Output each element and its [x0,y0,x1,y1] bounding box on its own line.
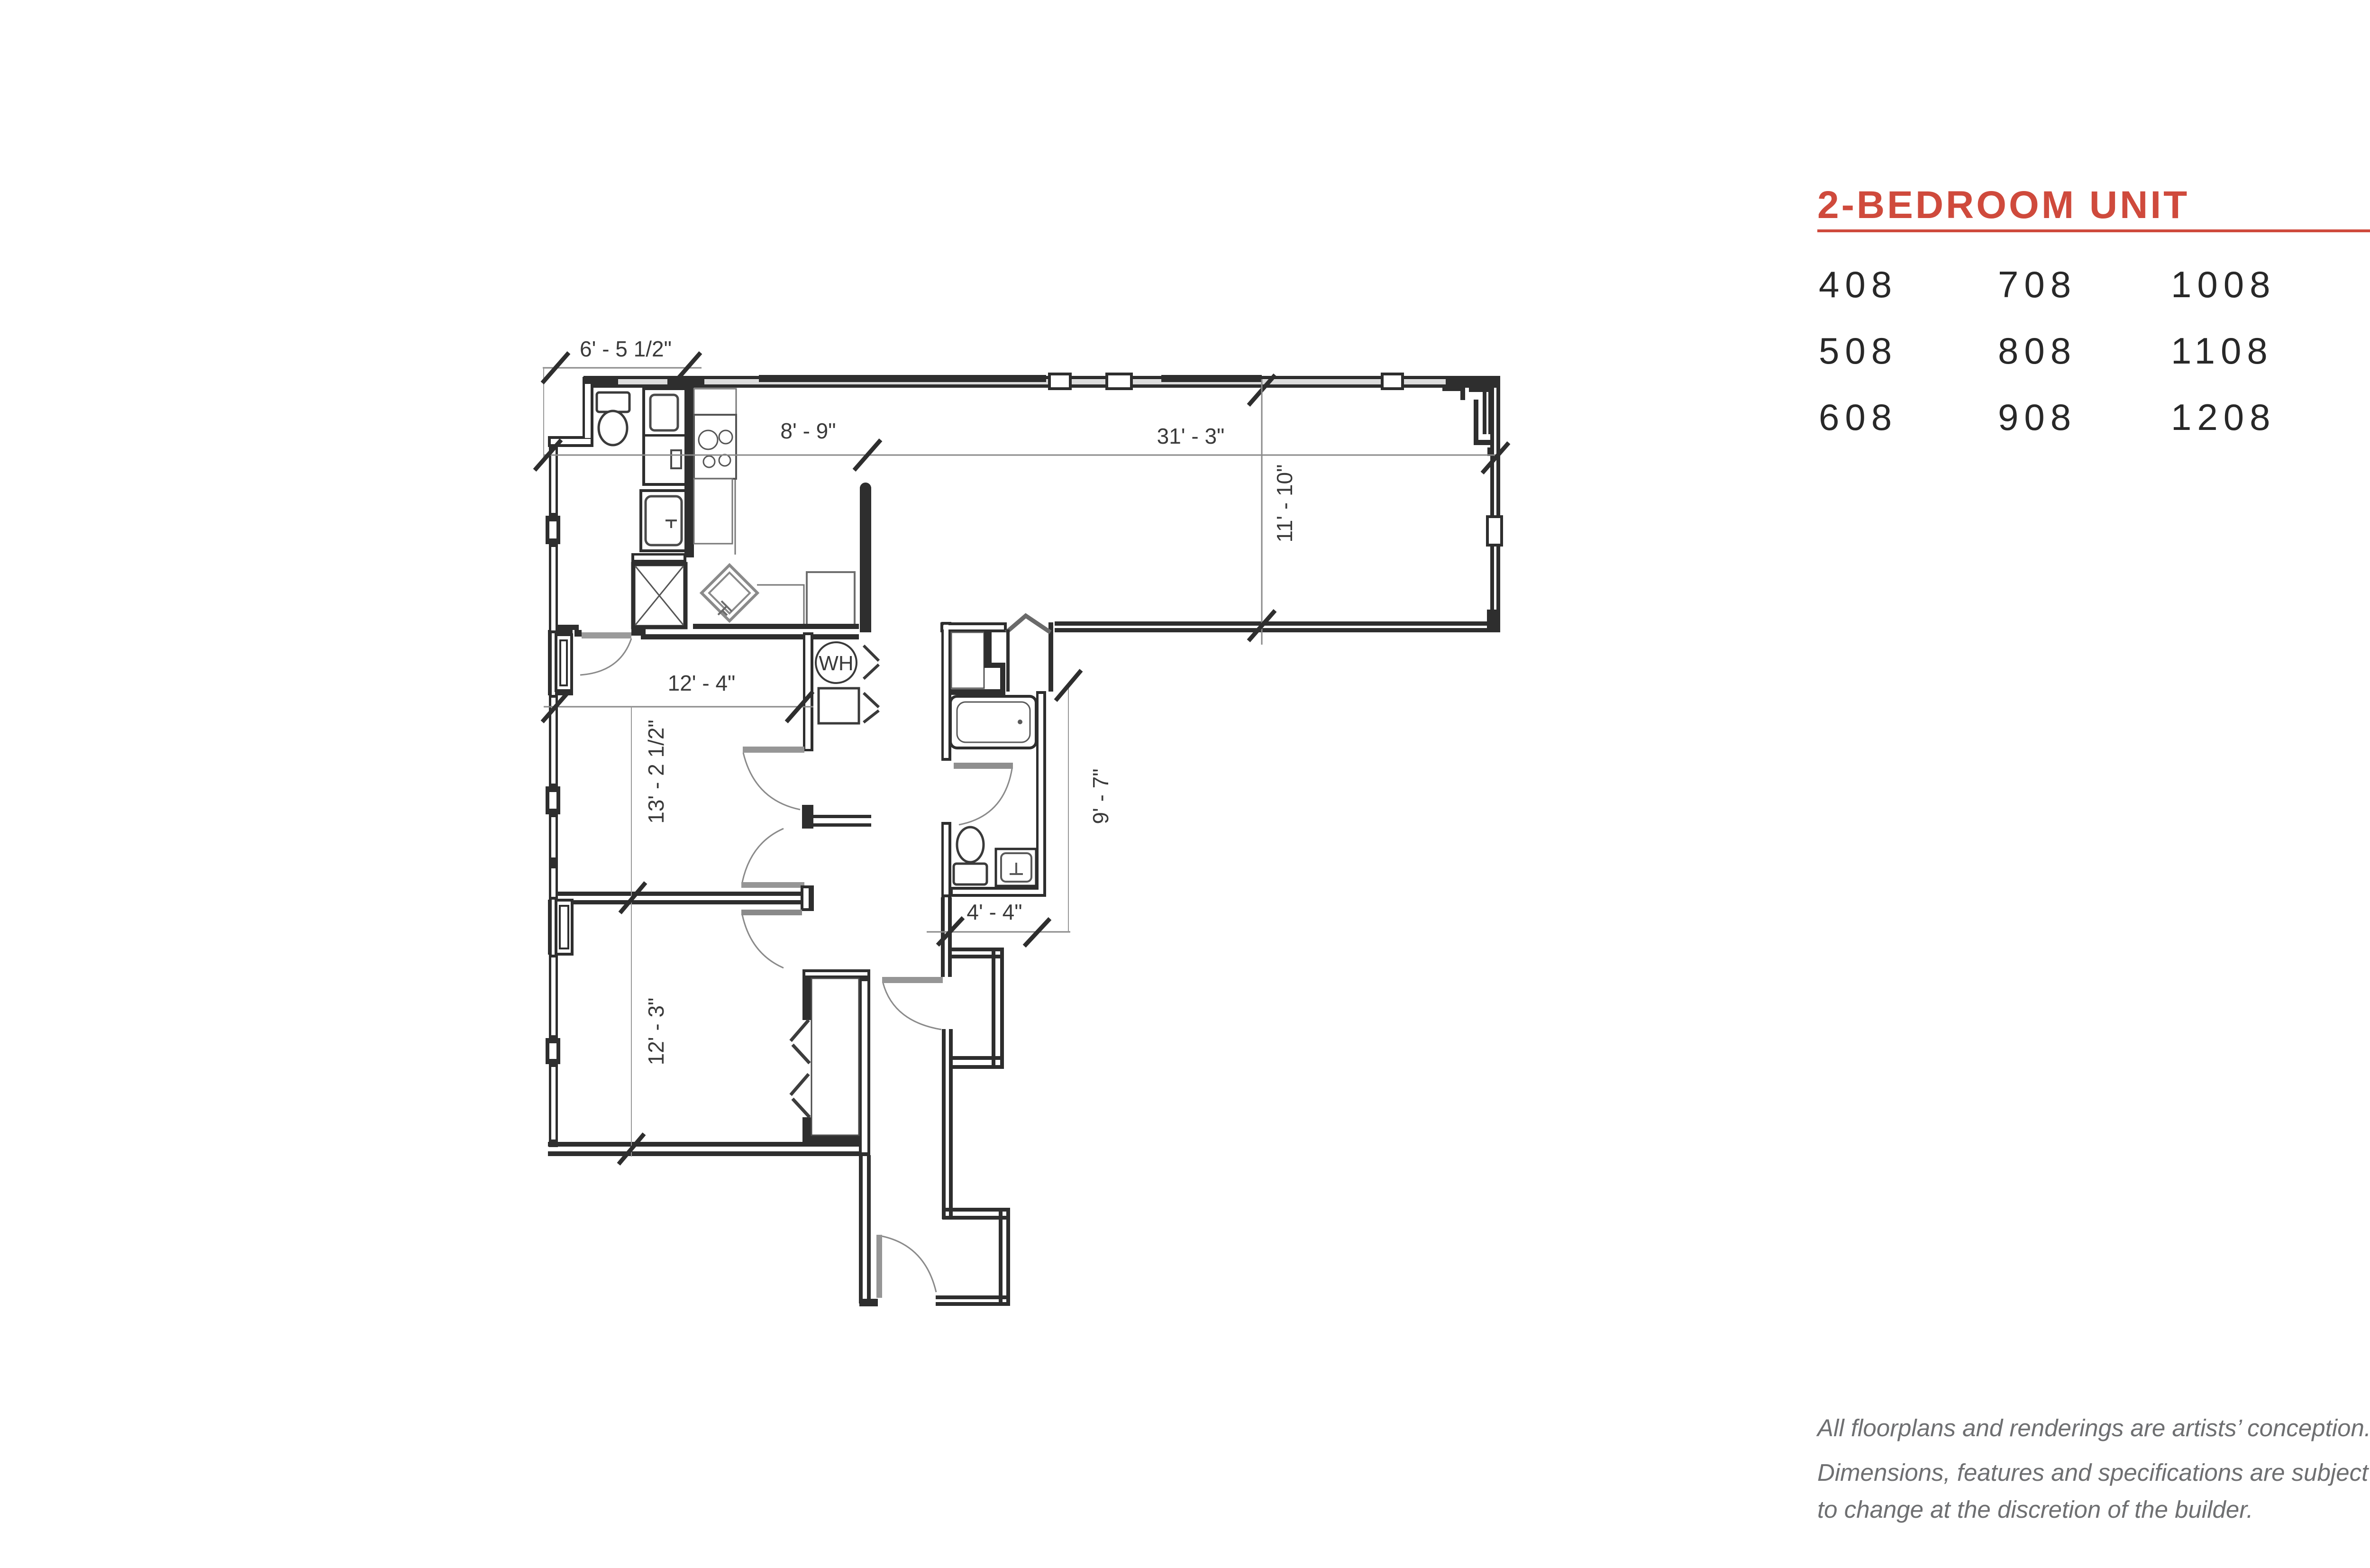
svg-text:1208: 1208 [2171,396,2276,438]
svg-text:6' - 5 1/2": 6' - 5 1/2" [580,337,672,361]
svg-text:31' - 3": 31' - 3" [1157,424,1225,448]
svg-text:508: 508 [1819,330,1897,372]
svg-text:12' - 4": 12' - 4" [668,671,736,695]
svg-text:908: 908 [1998,396,2077,438]
svg-text:408: 408 [1819,264,1897,305]
svg-text:4' - 4": 4' - 4" [966,900,1022,924]
svg-text:11' - 10": 11' - 10" [1272,465,1297,543]
svg-text:13' - 2 1/2": 13' - 2 1/2" [644,720,668,823]
svg-text:608: 608 [1819,396,1897,438]
svg-text:WH: WH [819,652,853,675]
svg-text:1008: 1008 [2171,264,2276,305]
svg-text:708: 708 [1998,264,2077,305]
svg-text:12' - 3": 12' - 3" [644,998,668,1066]
svg-text:9' - 7": 9' - 7" [1088,768,1113,824]
svg-text:to change at the discretion of: to change at the discretion of the build… [1817,1496,2253,1523]
svg-text:808: 808 [1998,330,2077,372]
svg-text:1108: 1108 [2171,330,2273,372]
svg-text:All floorplans and renderings: All floorplans and renderings are artist… [1816,1414,2370,1441]
svg-text:Dimensions, features and speci: Dimensions, features and specifications … [1817,1459,2369,1486]
svg-text:8' - 9": 8' - 9" [780,419,836,443]
svg-text:2-BEDROOM UNIT: 2-BEDROOM UNIT [1817,183,2189,227]
